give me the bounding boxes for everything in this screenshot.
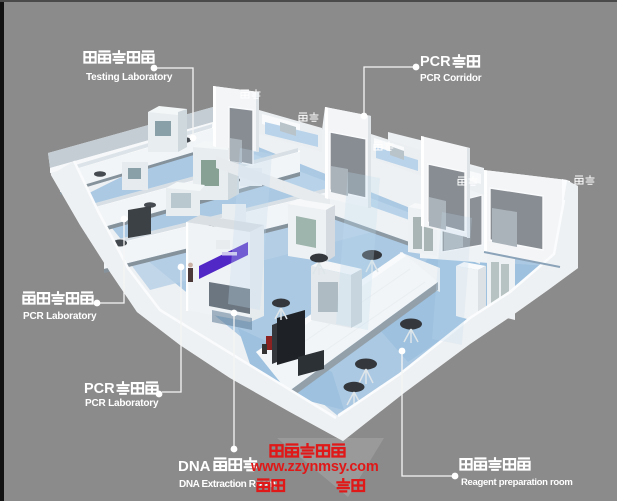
svg-text:PCR: PCR xyxy=(420,54,451,70)
svg-text:PCR Laboratory: PCR Laboratory xyxy=(23,311,97,322)
svg-text:www.zzynmsy.com: www.zzynmsy.com xyxy=(250,459,379,475)
svg-text:DNA: DNA xyxy=(178,458,211,475)
svg-text:DNA Extraction Room: DNA Extraction Room xyxy=(179,479,276,490)
svg-text:PCR Laboratory: PCR Laboratory xyxy=(85,398,159,409)
svg-text:Reagent preparation room: Reagent preparation room xyxy=(461,477,573,488)
svg-text:PCR Corridor: PCR Corridor xyxy=(420,73,482,84)
svg-text:Testing Laboratory: Testing Laboratory xyxy=(86,72,173,83)
svg-text:PCR: PCR xyxy=(84,381,115,397)
